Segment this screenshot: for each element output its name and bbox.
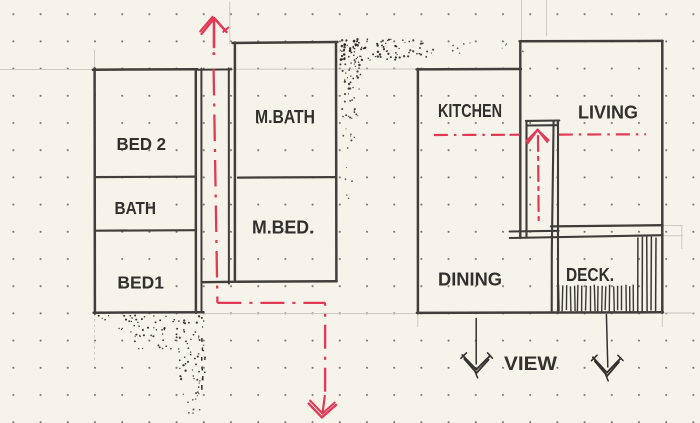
- svg-text:BED 2: BED 2: [117, 134, 167, 154]
- svg-text:DINING: DINING: [438, 270, 502, 290]
- svg-text:LIVING: LIVING: [578, 103, 638, 123]
- svg-text:VIEW: VIEW: [504, 354, 557, 375]
- svg-text:M.BED.: M.BED.: [252, 218, 314, 238]
- svg-text:DECK.: DECK.: [566, 265, 614, 285]
- svg-text:M.BATH: M.BATH: [255, 107, 315, 127]
- svg-text:BATH: BATH: [115, 198, 157, 218]
- svg-text:BED1: BED1: [117, 273, 164, 293]
- svg-text:KITCHEN: KITCHEN: [438, 101, 502, 121]
